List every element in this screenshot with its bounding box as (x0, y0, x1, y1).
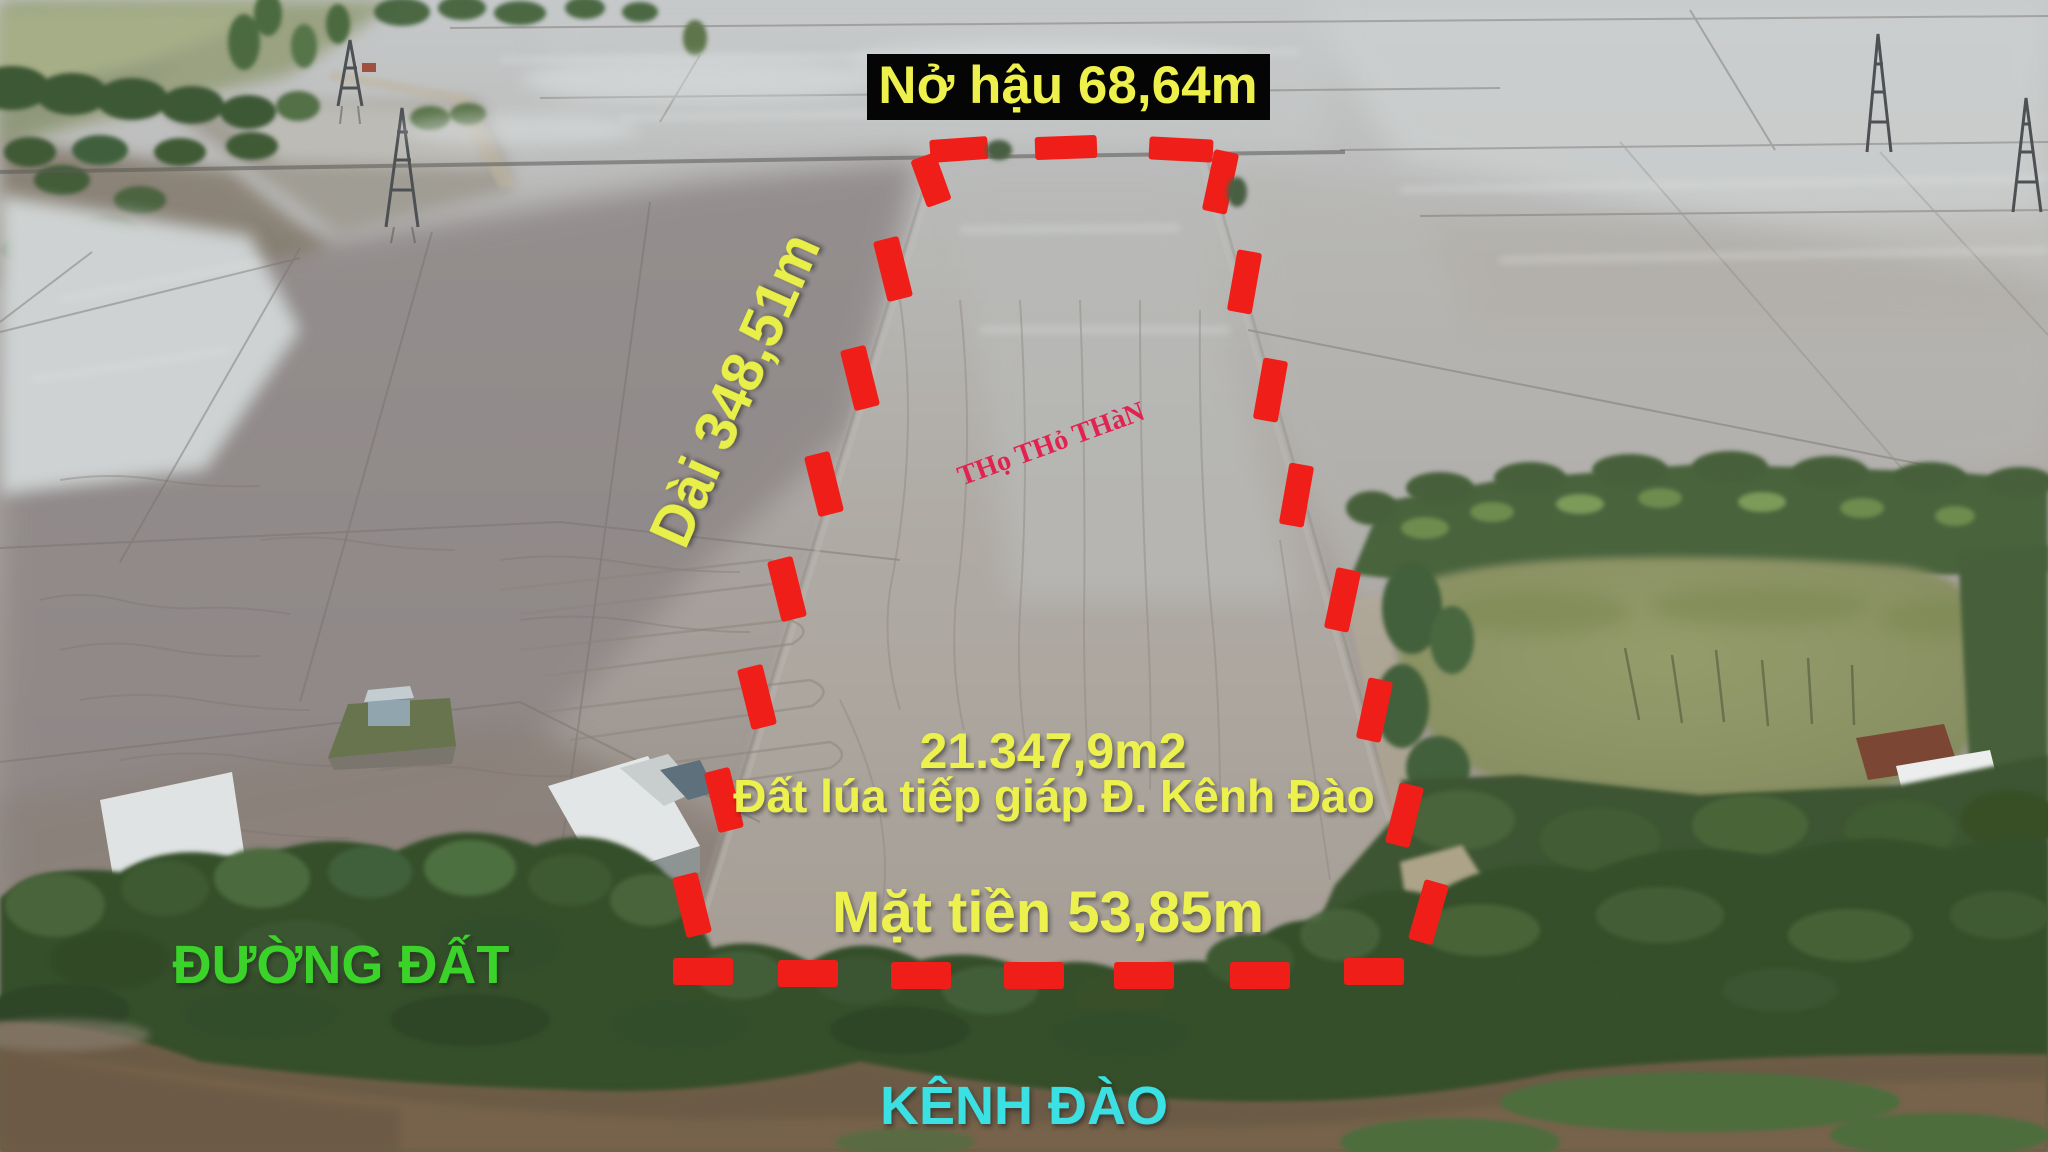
svg-text:ĐƯỜNG ĐẤT: ĐƯỜNG ĐẤT (173, 935, 510, 995)
svg-text:Đất lúa tiếp giáp Đ. Kênh Đào: Đất lúa tiếp giáp Đ. Kênh Đào (733, 770, 1375, 822)
svg-text:Mặt tiền 53,85m: Mặt tiền 53,85m (832, 880, 1264, 945)
svg-text:Nở hậu 68,64m: Nở hậu 68,64m (878, 56, 1257, 115)
svg-text:KÊNH ĐÀO: KÊNH ĐÀO (880, 1075, 1168, 1136)
